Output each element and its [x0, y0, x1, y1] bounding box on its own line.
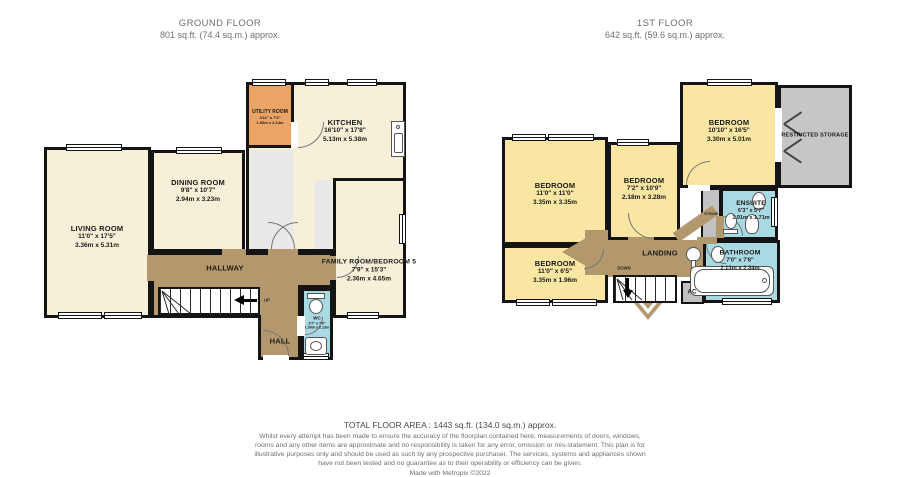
- room-family: [333, 178, 406, 318]
- room-label-bedroom-1: BEDROOM 11'0" x 11'0" 3.35m x 3.35m: [533, 181, 577, 207]
- room-label-storage: STORAGE: [704, 212, 718, 216]
- room-label-bedroom-2: BEDROOM 7'2" x 10'9" 2.18m x 3.28m: [622, 176, 666, 202]
- door-opening: [222, 249, 246, 256]
- toilet-icon: [309, 299, 323, 314]
- window: [516, 299, 550, 306]
- room-label-bedroom-4: BEDROOM 11'0" x 6'5" 3.35m x 1.96m: [533, 259, 577, 285]
- toilet-icon: [723, 229, 738, 234]
- window: [399, 214, 406, 244]
- window: [707, 79, 752, 86]
- room-label-bathroom: BATHROOM 7'0" x 7'8" 2.13m x 2.34m: [719, 250, 760, 273]
- first-floor-area: 642 sq.ft. (59.6 sq.m.) approx.: [605, 30, 725, 40]
- room-label-kitchen: KITCHEN 16'10" x 17'8" 5.13m x 5.38m: [323, 118, 367, 144]
- first-floor-title: 1ST FLOOR: [605, 18, 725, 29]
- door-opening: [697, 237, 717, 244]
- window: [722, 298, 772, 305]
- ground-floor-title: GROUND FLOOR: [160, 18, 280, 29]
- door-opening: [268, 249, 298, 256]
- kitchen-floor-recess: [315, 180, 332, 249]
- stairs-down-label: DOWN: [617, 266, 630, 271]
- stairs-up-label: UP: [264, 298, 270, 303]
- room-label-bedroom-3: BEDROOM 10'10" x 16'5" 3.30m x 5.01m: [707, 118, 751, 144]
- room-label-dining: DINING ROOM 9'8" x 10'7" 2.94m x 3.23m: [171, 178, 225, 204]
- room-label-living: LIVING ROOM 11'0" x 17'5" 3.36m x 5.31m: [71, 224, 124, 250]
- room-label-hallway: HALLWAY: [206, 263, 243, 272]
- door-opening: [147, 255, 154, 281]
- kitchen-sink-icon: [394, 133, 403, 153]
- room-label-wc: WC 3'7" x 7'0" 1.09m x 2.13m: [305, 316, 329, 331]
- footer: TOTAL FLOOR AREA : 1443 sq.ft. (134.0 sq…: [254, 420, 646, 477]
- window: [58, 312, 102, 319]
- total-floor-area: TOTAL FLOOR AREA : 1443 sq.ft. (134.0 sq…: [254, 420, 646, 430]
- down-arrow-icon: [623, 290, 633, 298]
- room-label-hall: HALL: [270, 336, 291, 345]
- tap-icon: [762, 278, 767, 283]
- window: [104, 312, 142, 319]
- window: [552, 299, 597, 306]
- sink-icon: [310, 341, 322, 351]
- first-floor-header: 1ST FLOOR 642 sq.ft. (59.6 sq.m.) approx…: [605, 18, 725, 40]
- room-label-ac: AC: [687, 289, 696, 297]
- up-arrow-icon: [234, 295, 244, 305]
- window: [347, 312, 379, 319]
- room-label-restricted-storage: RESTRICTED STORAGE: [781, 133, 848, 140]
- disclaimer-text: Whilst every attempt has been made to en…: [254, 433, 646, 469]
- room-label-landing: LANDING: [642, 248, 678, 257]
- window: [176, 147, 222, 154]
- window: [252, 79, 286, 86]
- window: [305, 79, 329, 86]
- window: [548, 134, 594, 141]
- window: [66, 144, 122, 151]
- room-label-family: FAMILY ROOM/BEDROOM 5 7'9" x 15'3" 2.36m…: [322, 259, 416, 284]
- door-gap: [688, 185, 710, 191]
- entrance-chevron: [643, 303, 653, 309]
- ground-floor-area: 801 sq.ft. (74.4 sq.m.) approx.: [160, 30, 280, 40]
- room-label-ensuite: ENSUITE 6'3" x 5'7" 1.91m x 1.71m: [732, 200, 769, 222]
- room-label-utility: UTILITY ROOM 4'11" x 7'0" 1.50m x 2.14m: [252, 109, 288, 125]
- window: [617, 139, 649, 146]
- stairs-down: [613, 275, 677, 303]
- window: [347, 79, 377, 86]
- bathtub-icon: [694, 269, 770, 293]
- stair-winder: [160, 289, 194, 315]
- door-gap: [291, 122, 298, 148]
- ground-floor-header: GROUND FLOOR 801 sq.ft. (74.4 sq.m.) app…: [160, 18, 280, 40]
- up-arrow-icon: [243, 299, 257, 302]
- window: [512, 134, 546, 141]
- door-opening: [584, 242, 608, 249]
- down-arrow-icon: [626, 278, 629, 290]
- window: [771, 197, 778, 227]
- metropix-credit: Made with Metropix ©2022: [254, 470, 646, 477]
- floorplan: GROUND FLOOR 801 sq.ft. (74.4 sq.m.) app…: [0, 0, 900, 477]
- door-gap: [297, 316, 305, 336]
- tap-icon: [396, 125, 400, 129]
